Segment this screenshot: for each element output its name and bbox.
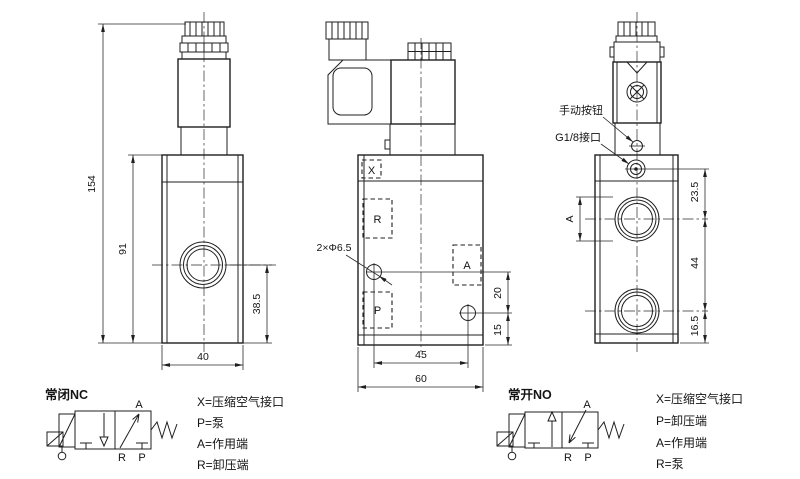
dim-a-label: A: [564, 215, 576, 222]
dim-60-label: 60: [415, 373, 427, 385]
port-a: A: [453, 245, 481, 285]
dim-20-label: 20: [492, 287, 504, 299]
spring-symbol: [598, 422, 624, 438]
dim-91-label: 91: [117, 243, 129, 255]
valve-technical-drawing: 154 91 38.5 40: [0, 0, 800, 479]
legend-no-line1: X=压缩空气接口: [656, 391, 743, 406]
dim-port-height: 38.5: [226, 265, 272, 343]
drawing-canvas: 154 91 38.5 40: [0, 0, 800, 479]
port-p: P: [363, 292, 392, 328]
port-x: X: [362, 160, 381, 178]
schematic-no-port-p: P: [584, 452, 591, 464]
dim-44-label: 44: [689, 257, 701, 269]
schematic-no-port-a: A: [583, 399, 591, 411]
dim-40-label: 40: [197, 351, 209, 363]
dim-15-label: 15: [492, 324, 504, 336]
port-r-label: R: [374, 214, 382, 226]
front-view: 154 91 38.5 40: [86, 12, 276, 370]
solenoid-symbol: [497, 414, 525, 460]
spring-symbol: [151, 422, 177, 438]
dim-154-label: 154: [86, 175, 98, 193]
schematic-nc-port-p: P: [138, 452, 145, 464]
dim-38.5-label: 38.5: [251, 294, 263, 315]
mounting-holes-callout: 2×Φ6.5: [317, 242, 392, 285]
dim-16.5-label: 16.5: [689, 316, 701, 337]
legend-nc-line1: X=压缩空气接口: [197, 394, 284, 409]
dim-body-height: 91: [117, 155, 162, 343]
port-r: R: [363, 199, 392, 238]
legend-no: X=压缩空气接口 P=卸压端 A=作用端 R=泵: [656, 391, 743, 471]
schematic-no: 常开NO A R P: [497, 387, 624, 464]
legend-nc: X=压缩空气接口 P=泵 A=作用端 R=卸压端: [197, 394, 284, 472]
schematic-no-title: 常开NO: [508, 387, 552, 402]
schematic-nc-title: 常闭NC: [45, 387, 88, 402]
screw-icon: [627, 82, 647, 102]
legend-nc-line2: P=泵: [197, 416, 224, 430]
manual-button-label: 手动按钮: [559, 103, 603, 117]
port-x-label: X: [368, 165, 376, 177]
back-view: 手动按钮 G1/8接口 A 23.5 44 16.5: [555, 12, 709, 352]
side-view: X R A P 2×Φ6.5 45: [317, 22, 512, 392]
dim-45-label: 45: [415, 349, 427, 361]
legend-nc-line3: A=作用端: [197, 437, 248, 451]
legend-no-line3: A=作用端: [656, 436, 707, 450]
g18-port-label: G1/8接口: [555, 131, 601, 144]
legend-no-line4: R=泵: [656, 457, 684, 471]
solenoid-symbol: [47, 414, 75, 460]
schematic-no-port-r: R: [564, 452, 572, 464]
legend-nc-line4: R=卸压端: [197, 457, 249, 472]
dim-back-heights: 23.5 44 16.5: [689, 169, 705, 343]
dim-overall-height: 154: [86, 24, 186, 343]
dim-hole-spacing: 45: [374, 349, 468, 363]
schematic-nc-port-r: R: [118, 452, 126, 464]
g18-port-callout: G1/8接口: [555, 131, 629, 164]
dim-front-width: 40: [162, 345, 243, 370]
port-p-label: P: [374, 305, 381, 317]
dim-23.5-label: 23.5: [689, 182, 701, 203]
schematic-nc: 常闭NC A R P: [45, 387, 177, 464]
legend-no-line2: P=卸压端: [656, 413, 707, 428]
dim-hole-offsets: 20 15: [476, 272, 512, 345]
port-a-label: A: [463, 260, 471, 272]
schematic-nc-port-a: A: [135, 399, 143, 411]
mounting-holes-label: 2×Φ6.5: [317, 242, 352, 254]
